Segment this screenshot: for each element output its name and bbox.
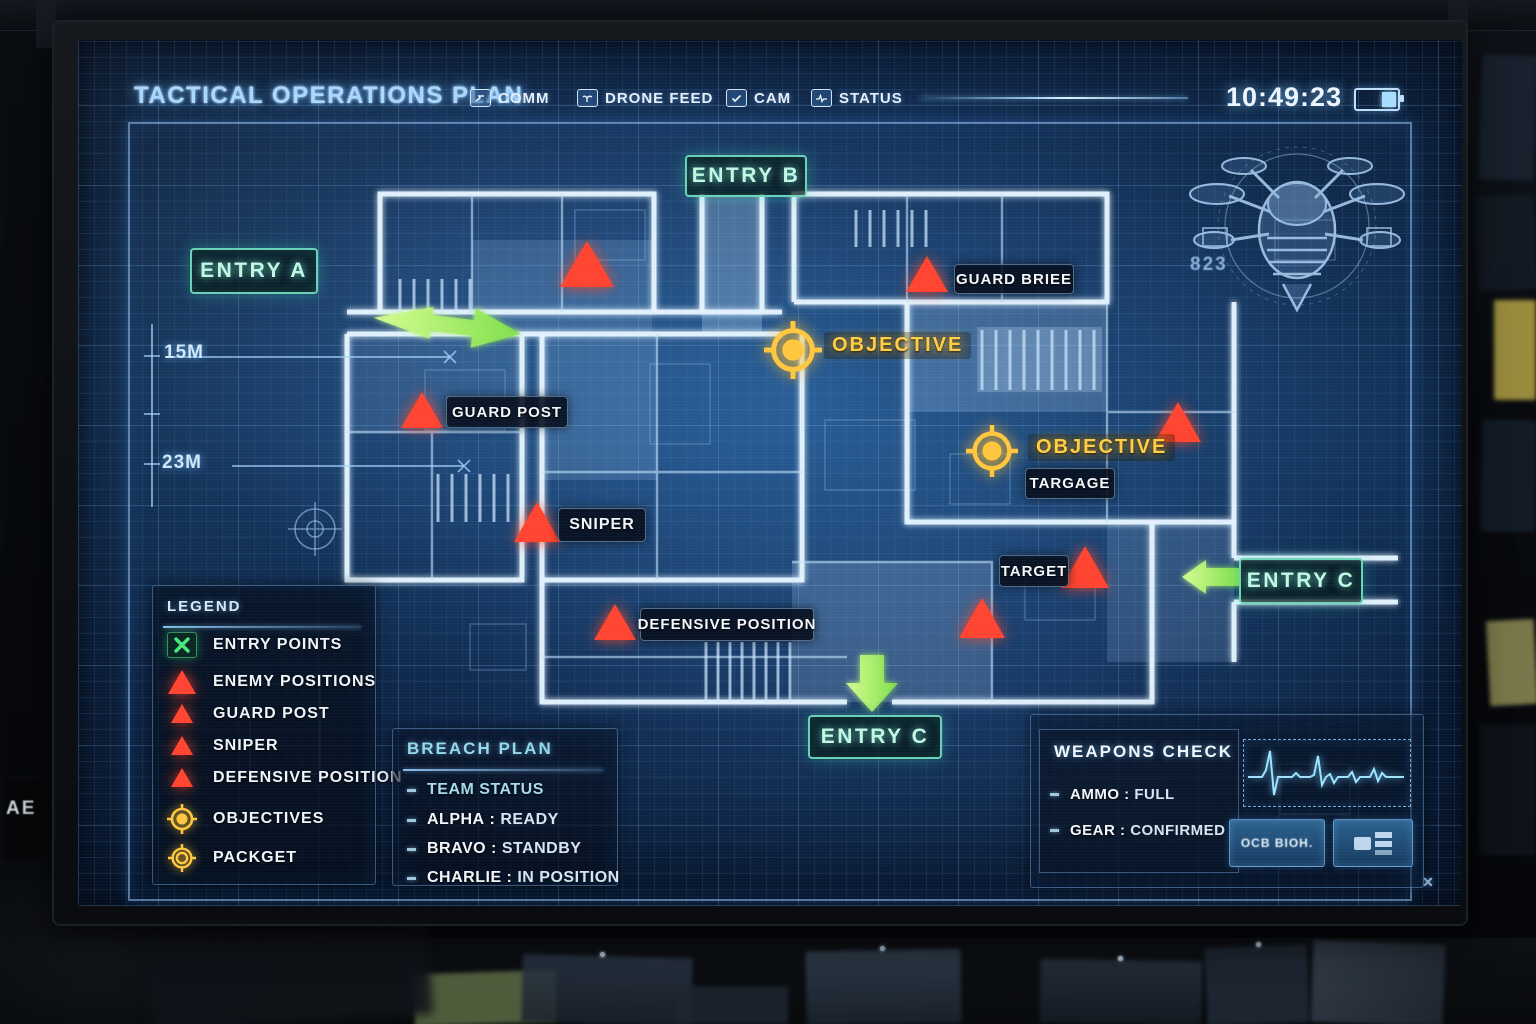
wall-photo (1475, 194, 1536, 291)
legend-underline (163, 626, 361, 628)
breach-plan-panel: BREACH PLAN TEAM STATUS ALPHA : READY BR… (392, 728, 618, 886)
guard-post-label: GUARD POST (446, 396, 568, 428)
legend-item-entry-points: ENTRY POINTS (167, 632, 342, 658)
menu-label: STATUS (839, 90, 903, 107)
menu-label: COMM (498, 90, 550, 107)
legend-item-objectives: OBJECTIVES (167, 804, 324, 834)
device-label: AE (6, 798, 36, 820)
legend-item-packget: PACKGET (167, 844, 297, 872)
menu-item-status[interactable]: STATUS (811, 89, 903, 107)
measurement-23m: 23M (162, 452, 202, 474)
page-title: TACTICAL OPERATIONS PLAN (134, 82, 523, 110)
entry-b-label: ENTRY B (685, 155, 807, 197)
map-area: 823 15M 23M ENTRY A ENTRY B ENTRY C ENTR… (128, 122, 1412, 901)
entry-a-label: ENTRY A (190, 248, 318, 294)
dash-icon (1050, 829, 1059, 832)
cam-icon (726, 89, 747, 107)
sniper-label: SNIPER (558, 508, 646, 542)
push-pin (880, 946, 885, 951)
enemy-marker (906, 256, 948, 292)
weapons-check-panel: WEAPONS CHECK AMMO : FULL GEAR : CONFIRM… (1030, 714, 1424, 888)
menu-item-drone-feed[interactable]: DRONE FEED (577, 89, 713, 107)
pin-photo (1039, 959, 1202, 1024)
ecg-monitor (1243, 739, 1411, 807)
status-icon (811, 89, 832, 107)
entry-point-x-icon (167, 632, 197, 658)
pin-photo (676, 986, 788, 1024)
push-pin (1256, 942, 1261, 947)
legend-item-enemy-positions: ENEMY POSITIONS (167, 670, 376, 694)
dash-icon (1050, 793, 1059, 796)
header-separator (920, 97, 1188, 99)
objective-crosshair-icon (167, 804, 197, 834)
entry-c-bottom-label: ENTRY C (808, 715, 942, 759)
targage-label: TARGAGE (1025, 468, 1115, 499)
war-room-scene: AE TACTICAL OPERATIONS PLAN COMM DRONE F… (0, 0, 1536, 1024)
legend-panel: LEGEND ENTRY POINTS ENEMY POSITIONS GUAR… (152, 585, 376, 885)
enemy-marker (959, 598, 1005, 638)
drone-tag: 823 (1190, 254, 1228, 276)
wall-photo (1479, 725, 1536, 855)
dash-icon (407, 819, 416, 822)
dash-icon (407, 848, 416, 851)
weapons-row-ammo: AMMO : FULL (1050, 786, 1175, 803)
notebook (147, 920, 433, 1024)
ecg-button-label: OCB BIOH. (1241, 836, 1313, 850)
weapons-check-title: WEAPONS CHECK (1054, 742, 1233, 762)
pin-photo (1205, 944, 1310, 1024)
enemy-triangle-icon (168, 670, 196, 694)
compass-detail (288, 502, 342, 556)
breach-plan-title: BREACH PLAN (407, 739, 553, 759)
list-button[interactable] (1333, 819, 1413, 867)
guard-post-marker (401, 392, 443, 428)
sniper-triangle-icon (171, 736, 193, 755)
legend-title: LEGEND (167, 598, 242, 615)
device-box (0, 778, 44, 862)
pin-photo (521, 954, 693, 1024)
legend-item-sniper: SNIPER (167, 736, 279, 755)
push-pin (1118, 956, 1123, 961)
guard-brief-label: GUARD BRIEE (954, 264, 1074, 294)
target-label: TARGET (999, 555, 1069, 587)
comm-icon (470, 89, 491, 107)
breach-row-team-status: TEAM STATUS (407, 781, 544, 799)
enemy-marker (560, 241, 614, 287)
measurement-15m: 15M (164, 342, 204, 364)
breach-row-alpha: ALPHA : READY (407, 811, 559, 829)
push-pin (600, 952, 605, 957)
ecg-button[interactable]: OCB BIOH. (1229, 819, 1325, 867)
tactical-screen: TACTICAL OPERATIONS PLAN COMM DRONE FEED… (78, 40, 1462, 906)
drone-feed-icon (577, 89, 598, 107)
breach-row-charlie: CHARLIE : IN POSITION (407, 869, 620, 887)
clock: 10:49:23 (1226, 82, 1342, 113)
menu-label: DRONE FEED (605, 90, 713, 107)
legend-item-defensive-position: DEFENSIVE POSITION (167, 768, 403, 787)
sticky-note (1486, 619, 1536, 706)
pin-photo (805, 949, 961, 1024)
package-crosshair-icon (168, 844, 196, 872)
menu-label: CAM (754, 90, 791, 107)
defensive-position-label: DEFENSIVE POSITION (640, 608, 814, 641)
drone-blueprint (1190, 147, 1404, 310)
objective-2-label: OBJECTIVE (1028, 434, 1175, 461)
sticky-note (1494, 300, 1536, 400)
objective-crosshair-icon (764, 321, 822, 379)
defensive-marker (594, 604, 636, 640)
menu-item-cam[interactable]: CAM (726, 89, 791, 107)
menu-item-comm[interactable]: COMM (470, 89, 550, 107)
defensive-triangle-icon (171, 768, 193, 787)
entry-c-right-label: ENTRY C (1239, 558, 1363, 604)
breach-row-bravo: BRAVO : STANDBY (407, 840, 581, 858)
pin-photo (1311, 940, 1446, 1024)
list-icon (1353, 830, 1393, 856)
guard-triangle-icon (171, 704, 193, 723)
breach-plan-underline (403, 769, 603, 771)
weapons-row-gear: GEAR : CONFIRMED (1050, 822, 1226, 839)
objective-crosshair-icon (966, 425, 1018, 477)
dash-icon (407, 789, 416, 792)
dash-icon (407, 877, 416, 880)
legend-item-guard-post: GUARD POST (167, 704, 330, 723)
ecg-waveform (1246, 743, 1406, 801)
wall-photo (1478, 54, 1536, 181)
weapons-check-box: WEAPONS CHECK AMMO : FULL GEAR : CONFIRM… (1039, 729, 1239, 873)
wall-photo (1480, 420, 1536, 533)
objective-1-label: OBJECTIVE (824, 332, 971, 359)
sniper-marker (514, 502, 560, 542)
battery-icon (1354, 88, 1400, 111)
